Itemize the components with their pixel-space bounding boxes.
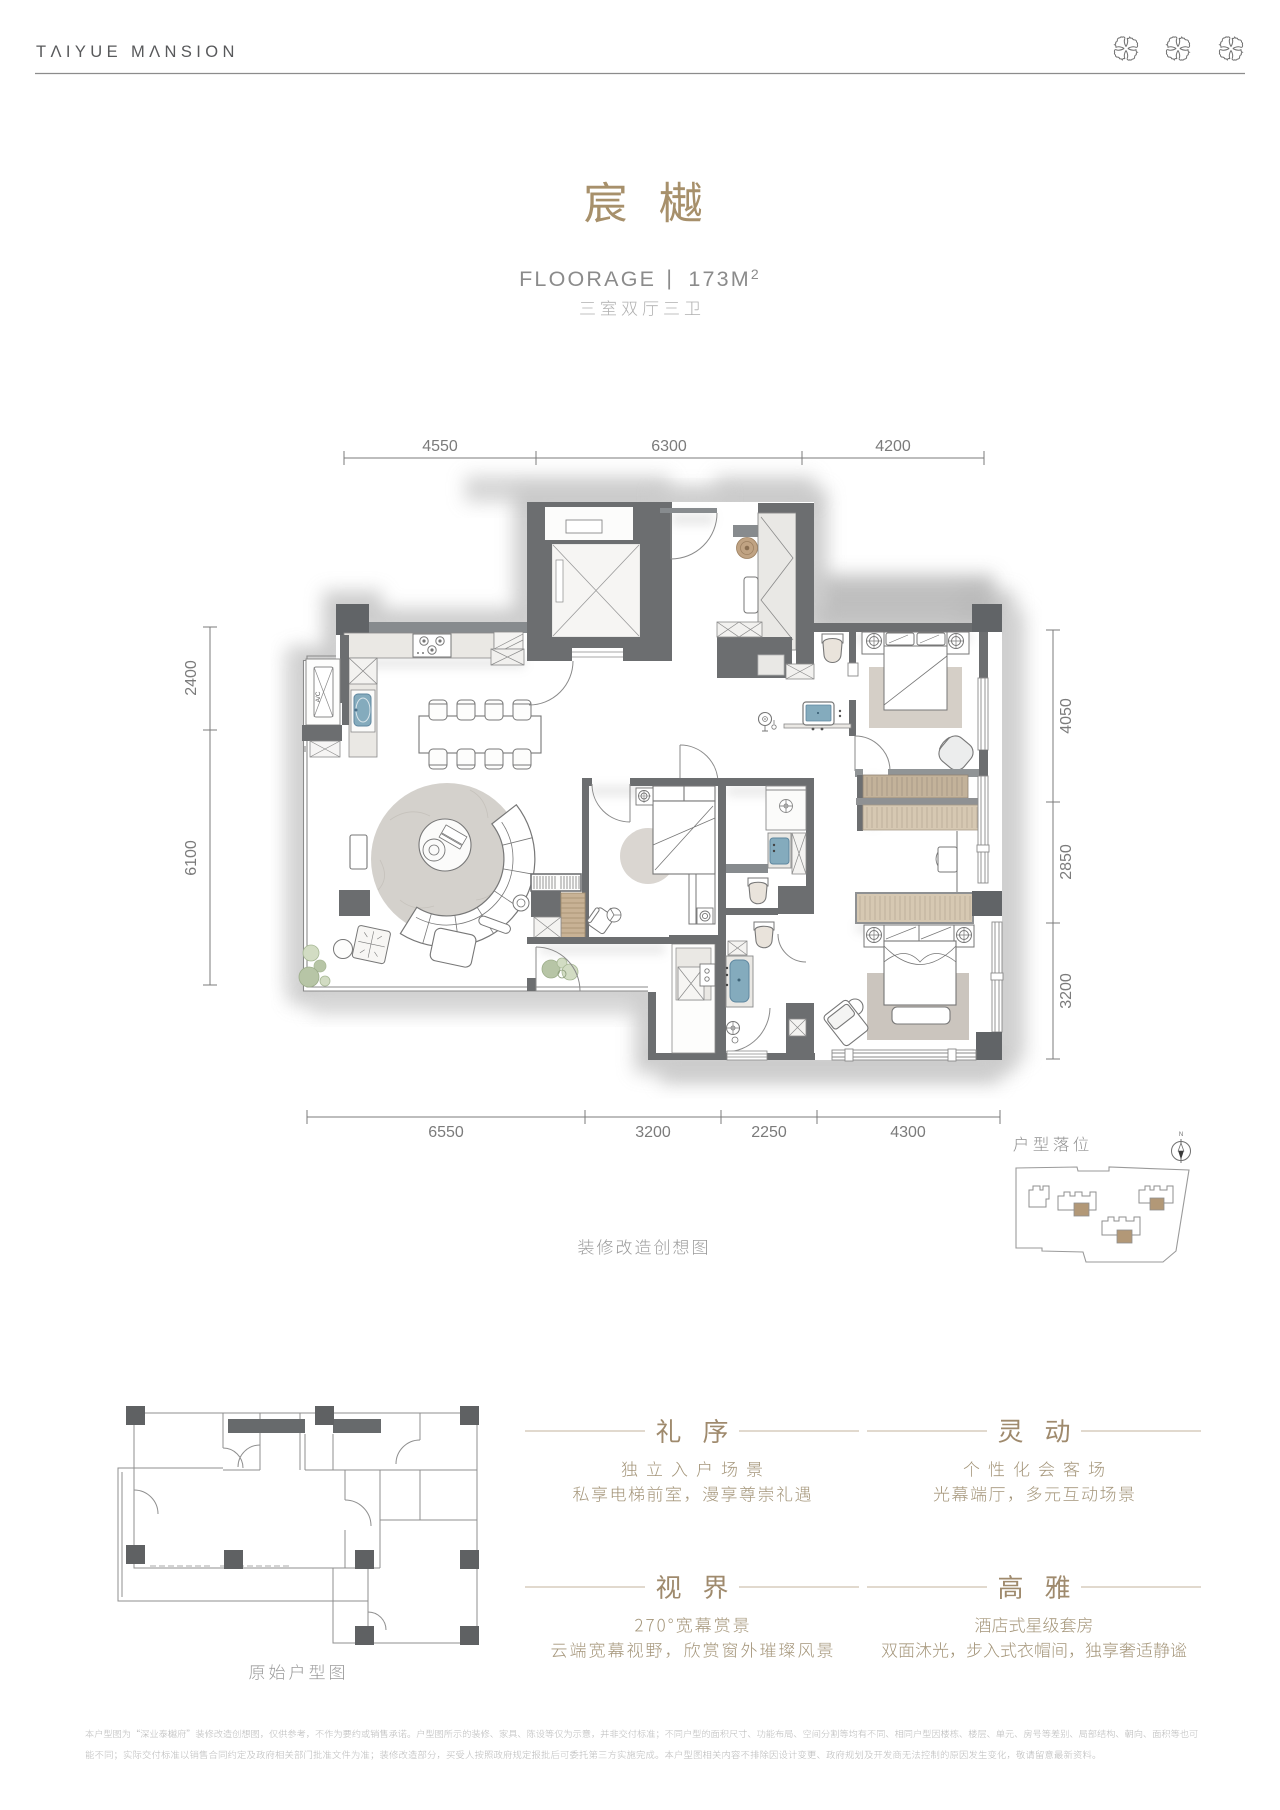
svg-text:4200: 4200 — [875, 438, 911, 455]
svg-text:4050: 4050 — [1058, 698, 1075, 734]
svg-text:6300: 6300 — [651, 438, 687, 455]
svg-text:6100: 6100 — [183, 840, 200, 876]
svg-text:FLOORAGE | 173M2: FLOORAGE | 173M2 — [519, 266, 761, 291]
svg-text:4550: 4550 — [422, 438, 458, 455]
svg-text:2850: 2850 — [1058, 844, 1075, 880]
svg-text:TΛIYUE MΛNSION: TΛIYUE MΛNSION — [36, 43, 239, 61]
svg-text:4300: 4300 — [890, 1124, 926, 1141]
svg-text:3200: 3200 — [1058, 973, 1075, 1009]
svg-text:6550: 6550 — [428, 1124, 464, 1141]
svg-text:2400: 2400 — [183, 660, 200, 696]
svg-text:N: N — [1179, 1132, 1183, 1138]
svg-text:3200: 3200 — [635, 1124, 671, 1141]
svg-text:A/C: A/C — [315, 691, 322, 702]
svg-text:2250: 2250 — [751, 1124, 787, 1141]
